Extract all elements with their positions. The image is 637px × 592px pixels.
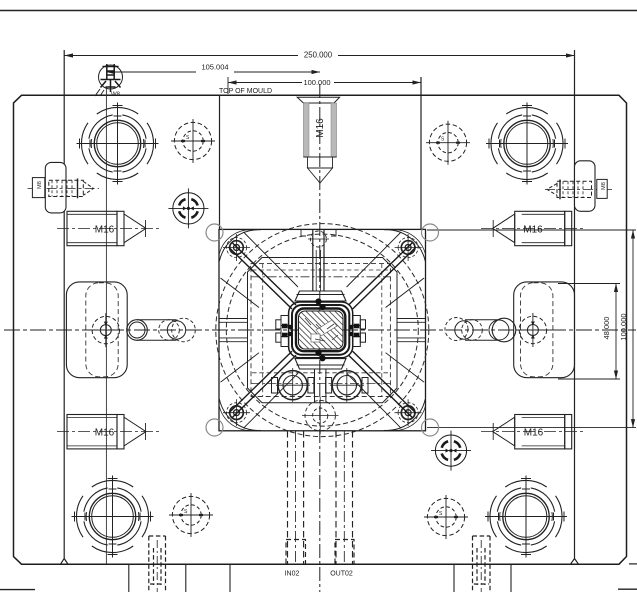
svg-text:100.000: 100.000 — [619, 313, 628, 340]
svg-text:M16: M16 — [523, 225, 543, 236]
svg-text:48.000: 48.000 — [602, 317, 611, 340]
svg-text:M16: M16 — [95, 428, 115, 439]
svg-text:105.004: 105.004 — [201, 63, 228, 72]
svg-text:M16: M16 — [95, 225, 115, 236]
svg-text:W8: W8 — [111, 92, 121, 98]
svg-text:100.000: 100.000 — [303, 78, 330, 87]
svg-text:OUT02: OUT02 — [330, 571, 353, 578]
svg-text:M8: M8 — [601, 182, 607, 190]
svg-text:TOP OF MOULD: TOP OF MOULD — [219, 88, 272, 95]
svg-text:IN02: IN02 — [285, 571, 300, 578]
svg-text:250.000: 250.000 — [304, 51, 333, 60]
svg-text:M8: M8 — [37, 181, 43, 189]
svg-text:M16: M16 — [524, 428, 544, 439]
svg-text:M16: M16 — [315, 118, 326, 138]
